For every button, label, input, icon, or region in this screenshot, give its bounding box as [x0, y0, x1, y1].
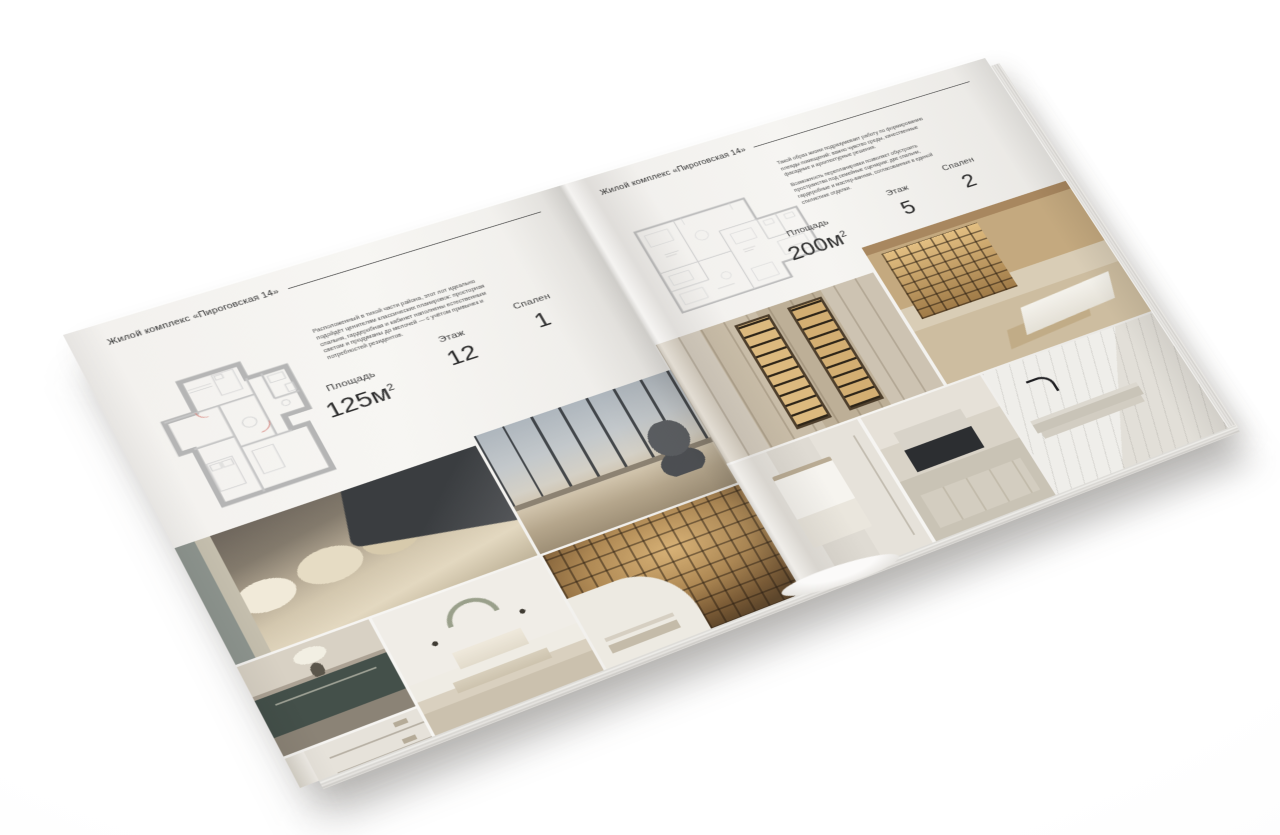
- header-rule: [288, 212, 542, 290]
- stat-floor: Этаж 5: [866, 178, 943, 227]
- stat-bedrooms: Спален 1: [497, 287, 581, 341]
- stat-area: Площадь 125м2: [302, 363, 414, 427]
- complex-name: Жилой комплекс «Пироговская 14»: [106, 288, 281, 347]
- brochure-mockup-scene: Жилой комплекс «Пироговская 14»: [0, 0, 1280, 835]
- stat-area-value: 125м2: [309, 376, 414, 428]
- wall-sconces: [391, 591, 566, 665]
